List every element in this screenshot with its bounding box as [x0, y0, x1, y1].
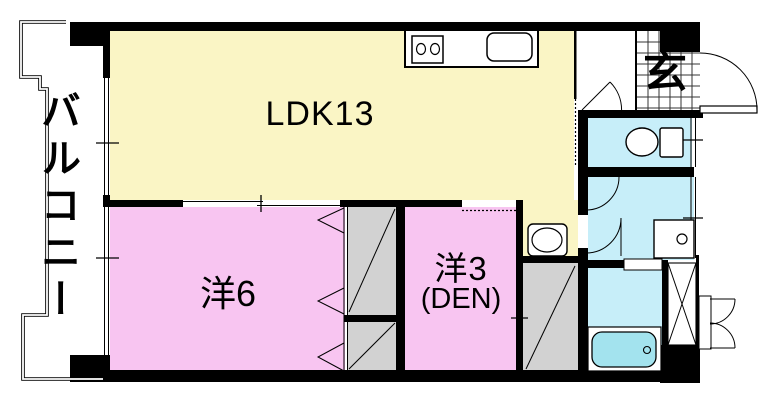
stove-burner-icon	[431, 44, 440, 55]
washing-machine-icon	[654, 220, 694, 258]
wall-segment	[578, 167, 694, 177]
wall-segment	[662, 260, 668, 371]
washbasin-bowl-icon	[532, 228, 562, 252]
wall-segment	[103, 370, 700, 382]
wall-segment	[103, 22, 110, 78]
front-door-leaf	[700, 106, 757, 113]
western-room-6-label: 洋6	[148, 265, 308, 317]
wall-segment	[344, 315, 405, 322]
wall-segment	[70, 22, 103, 46]
ldk-label: LDK13	[235, 95, 405, 134]
balcony-label: バルコニー	[33, 90, 81, 350]
front-door-swing-arc	[700, 53, 757, 110]
meter-box-door-swing-arc	[710, 323, 735, 348]
wall-segment	[103, 200, 183, 207]
washing-machine-drain-icon	[677, 234, 687, 244]
wall-segment	[396, 200, 462, 207]
wall-segment	[578, 110, 703, 118]
kitchen-sink-icon	[487, 33, 532, 61]
wall-segment	[578, 110, 588, 215]
wall-segment	[516, 256, 588, 263]
hall-door-swing-arc	[610, 82, 622, 110]
entrance-label: 玄	[636, 50, 694, 96]
wall-segment	[574, 31, 577, 99]
toilet-icon	[626, 128, 658, 156]
hall-door-leaf	[582, 82, 610, 110]
meter-box-door	[699, 296, 711, 349]
bathtub-icon	[592, 332, 656, 367]
wall-segment	[340, 200, 405, 207]
den-sublabel: (DEN)	[396, 283, 526, 316]
meter-box-door-swing-arc	[710, 299, 735, 324]
stove-burner-icon	[417, 44, 426, 55]
wall-segment	[103, 22, 700, 31]
floor-plan: バルコニー LDK13 玄 洋6 洋3 (DEN)	[0, 0, 766, 406]
bathroom-door	[624, 259, 662, 270]
toilet-tank-icon	[660, 128, 683, 157]
